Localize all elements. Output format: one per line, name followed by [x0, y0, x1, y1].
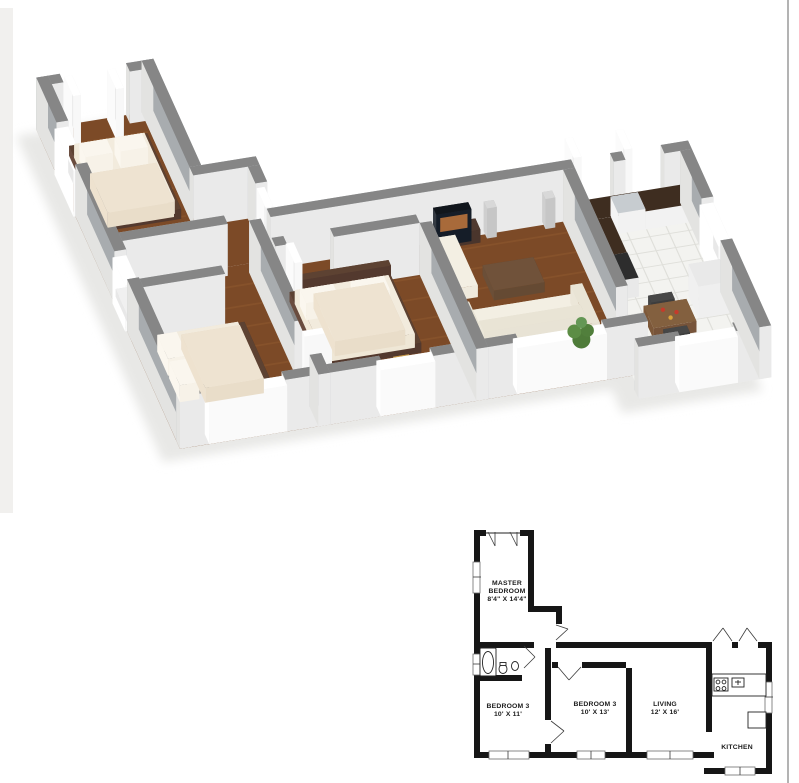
table-fruit: [674, 310, 678, 314]
room-label-line: 10' X 11': [487, 711, 530, 719]
right-border-line: [787, 0, 789, 783]
floor-plan-2d: MASTERBEDROOM8'4" X 14'4"BEDROOM 310' X …: [462, 519, 778, 783]
floor-plan-3d-render: [0, 0, 799, 519]
room-label-kitchen: KITCHEN: [721, 744, 753, 752]
plant-foliage: [576, 317, 587, 328]
room-label-line: BEDROOM 3: [487, 703, 530, 711]
room-label-living: LIVING12' X 16': [651, 701, 679, 717]
room-label-line: KITCHEN: [721, 744, 753, 752]
room-label-bedroom-3a: BEDROOM 310' X 11': [487, 703, 530, 719]
floor-plan-3d: [0, 0, 799, 519]
plan-walls: [473, 530, 773, 775]
room-label-line: BEDROOM 3: [574, 701, 617, 709]
room-label-line: 8'4" X 14'4": [487, 596, 526, 604]
table-fruit: [668, 315, 672, 319]
room-label-line: 12' X 16': [651, 709, 679, 717]
room-label-master-bedroom: MASTERBEDROOM8'4" X 14'4": [487, 580, 526, 604]
room-label-line: 10' X 13': [574, 709, 617, 717]
room-label-line: LIVING: [651, 701, 679, 709]
room-label-line: MASTER: [487, 580, 526, 588]
room-label-bedroom-3b: BEDROOM 310' X 13': [574, 701, 617, 717]
floorplan-page: MASTERBEDROOM8'4" X 14'4"BEDROOM 310' X …: [0, 0, 799, 783]
room-label-line: BEDROOM: [487, 588, 526, 596]
table-fruit: [661, 308, 665, 312]
